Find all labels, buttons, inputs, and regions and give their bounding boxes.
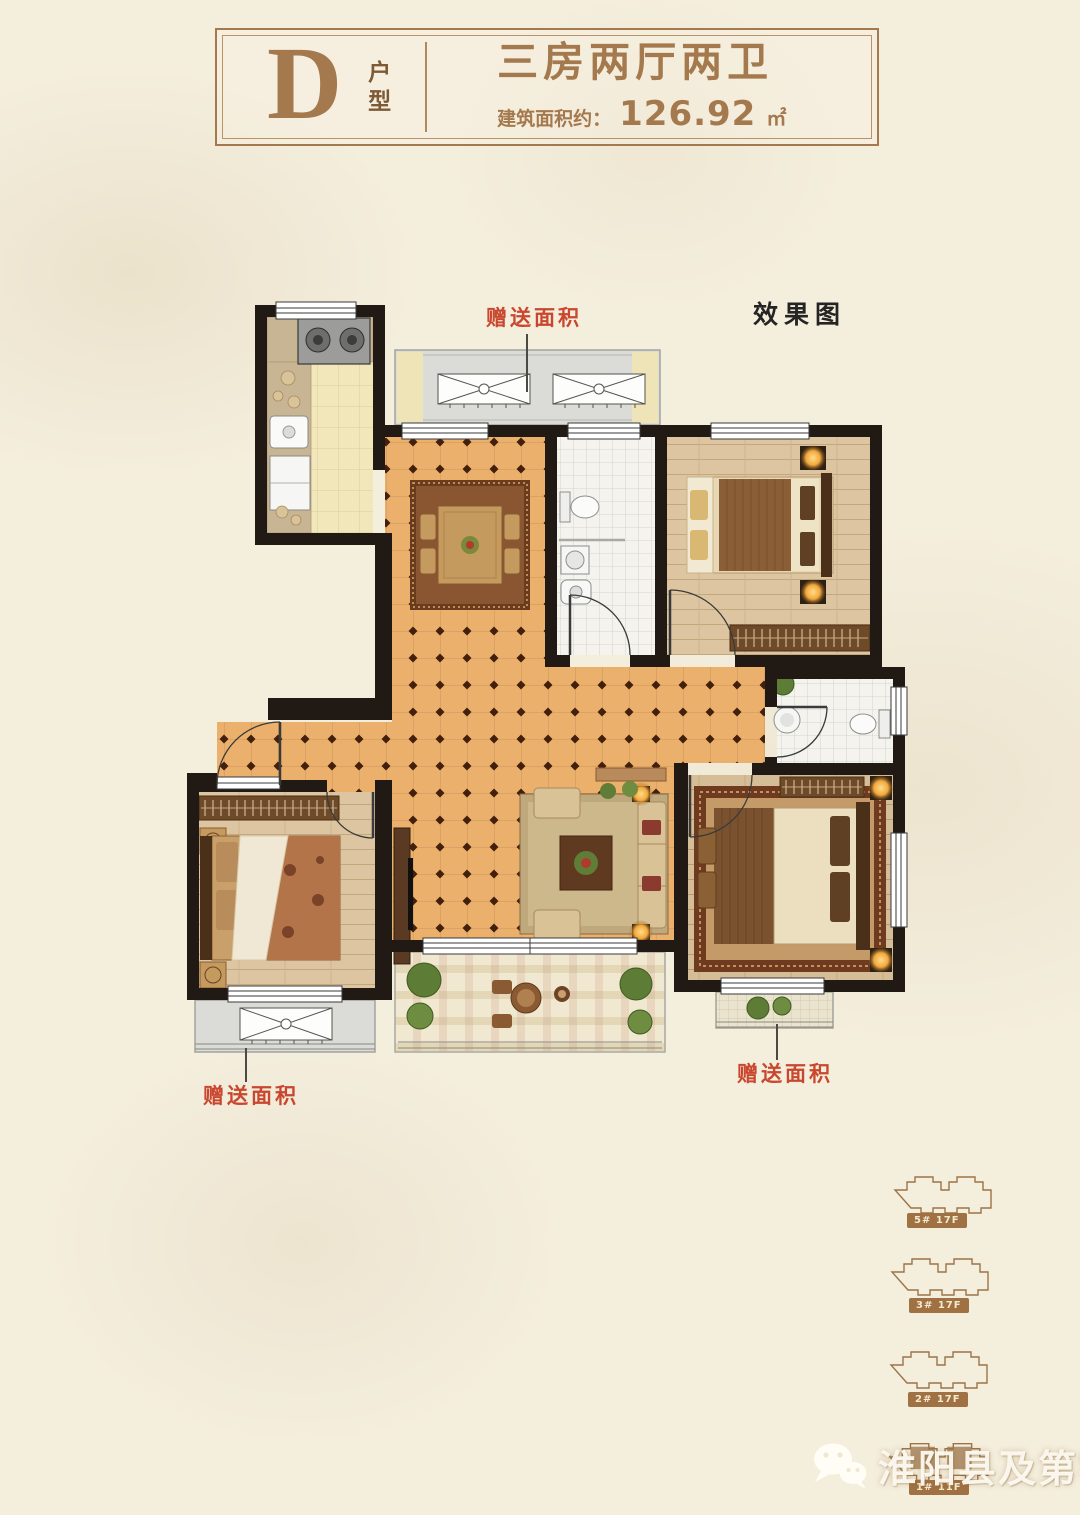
window: [891, 833, 907, 927]
sliding-door: [423, 938, 637, 954]
armchair: [534, 910, 580, 940]
stove-icon: [298, 318, 370, 364]
building-label: 5# 17F: [907, 1213, 967, 1228]
headboard: [200, 836, 212, 960]
gift-area-label-bottom-left: 赠送面积: [203, 1080, 299, 1110]
building-label: 2# 17F: [908, 1392, 968, 1407]
nightstand: [200, 962, 226, 988]
window: [711, 423, 809, 439]
plant-icon: [747, 997, 769, 1019]
toilet-icon: [560, 492, 570, 522]
plant-icon: [407, 963, 441, 997]
stool: [492, 980, 512, 994]
sink-icon: [270, 416, 308, 448]
pillow: [830, 816, 850, 866]
plant-icon: [620, 968, 652, 1000]
pillow: [800, 532, 815, 566]
plan-type-header: D 户 型 三房两厅两卫 建筑面积约： 126.92 ㎡: [215, 28, 879, 146]
pillow: [216, 842, 238, 882]
watermark-text: 淮阳县及第学府: [878, 1438, 1080, 1493]
leader-line: [526, 334, 528, 392]
leader-line: [245, 1048, 247, 1082]
area-label: 建筑面积约：: [497, 104, 611, 131]
plant-icon: [628, 1010, 652, 1034]
window: [276, 302, 356, 319]
window: [228, 986, 342, 1002]
type-letter: D: [267, 32, 342, 136]
area-value: 126.92: [619, 94, 756, 134]
dining-set: [410, 480, 530, 610]
gift-area-label-bottom-right: 赠送面积: [737, 1058, 833, 1088]
wardrobe-icon: [730, 625, 870, 651]
header-title-block: 三房两厅两卫 建筑面积约： 126.92 ㎡: [497, 40, 786, 133]
pillow: [830, 872, 850, 922]
headboard: [821, 473, 832, 577]
bench: [698, 828, 716, 864]
headboard: [856, 802, 870, 950]
window: [891, 687, 907, 735]
wardrobe-icon: [780, 777, 864, 797]
header-frame: D 户 型 三房两厅两卫 建筑面积约： 126.92 ㎡: [222, 35, 872, 139]
plant-icon: [622, 781, 638, 797]
entry-threshold: [217, 777, 280, 789]
stool: [492, 1014, 512, 1028]
type-suffix-char: 户: [368, 61, 391, 84]
plant-icon: [773, 997, 791, 1015]
type-suffix-char: 型: [368, 90, 391, 113]
window: [721, 978, 824, 994]
type-suffix: 户 型: [368, 61, 391, 113]
tv-icon: [408, 858, 413, 930]
header-divider: [425, 42, 427, 132]
master-bedroom-furniture: [694, 775, 894, 973]
plant-icon: [407, 1003, 433, 1029]
console-table: [596, 768, 666, 781]
area-unit: ㎡: [766, 102, 786, 131]
window-box-symbol: [240, 1008, 332, 1044]
floorplan-poster: D 户 型 三房两厅两卫 建筑面积约： 126.92 ㎡: [0, 0, 1080, 1515]
plant-icon: [600, 783, 616, 799]
area-line: 建筑面积约： 126.92 ㎡: [497, 94, 786, 134]
bench: [698, 872, 716, 908]
building-label: 3# 17F: [909, 1298, 969, 1313]
bed-blanket: [719, 479, 791, 571]
render-image-tag: 效果图: [753, 295, 846, 331]
window: [402, 423, 488, 439]
pillow: [800, 486, 815, 520]
building-footprint: [888, 1252, 992, 1298]
gift-area-label-top: 赠送面积: [486, 302, 582, 332]
toilet-icon: [879, 710, 890, 738]
floorplan-drawing: [170, 280, 930, 1120]
wardrobe-icon: [199, 796, 339, 820]
watermark: 淮阳县及第学府: [812, 1438, 1080, 1493]
building-footprint: [893, 1170, 993, 1216]
leader-line: [776, 1024, 778, 1060]
window-box-symbol: [553, 374, 645, 408]
window-box-symbol: [438, 374, 530, 408]
armchair: [534, 788, 580, 818]
building-footprint: [887, 1345, 991, 1391]
window: [568, 423, 640, 439]
layout-title: 三房两厅两卫: [497, 40, 786, 85]
wechat-icon: [812, 1441, 868, 1491]
